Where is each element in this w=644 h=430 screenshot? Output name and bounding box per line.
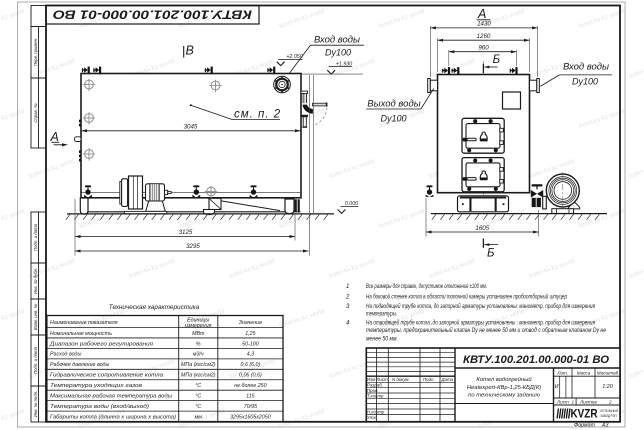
svg-text:Инв. № дубл.: Инв. № дубл. bbox=[33, 268, 38, 294]
svg-text:Dy100: Dy100 bbox=[572, 77, 598, 87]
svg-text:м3/ч: м3/ч bbox=[193, 352, 204, 358]
svg-text:Б: Б bbox=[487, 248, 495, 260]
svg-text:А3: А3 bbox=[601, 423, 609, 429]
svg-text:Лист: Лист bbox=[556, 399, 569, 404]
svg-text:3125: 3125 bbox=[179, 229, 193, 236]
svg-text:КВТУ.100.201.00.000-01 ВО: КВТУ.100.201.00.000-01 ВО bbox=[52, 7, 252, 21]
svg-text:3295х1605х2050: 3295х1605х2050 bbox=[230, 414, 271, 420]
svg-text:не более 250: не более 250 bbox=[234, 383, 266, 389]
svg-text:°С: °С bbox=[195, 404, 201, 410]
svg-text:Температура уходящих газов: Температура уходящих газов bbox=[50, 383, 142, 389]
svg-text:На подводящей трубе котла, до: На подводящей трубе котла, до запорной а… bbox=[366, 303, 596, 310]
svg-text:Dy100: Dy100 bbox=[380, 114, 406, 124]
svg-text:измерения: измерения bbox=[185, 323, 212, 329]
svg-text:Рабочее давление воды: Рабочее давление воды bbox=[50, 362, 109, 368]
svg-text:Температура воды (вход/выход): Температура воды (вход/выход) bbox=[50, 404, 149, 410]
svg-text:И: И bbox=[555, 384, 559, 390]
svg-text:Утв: Утв bbox=[367, 415, 376, 420]
svg-text:Изм Лист: Изм Лист bbox=[367, 377, 388, 382]
svg-text:1: 1 bbox=[572, 399, 575, 404]
svg-text:Наименование показателя: Наименование показателя bbox=[50, 320, 118, 326]
svg-text:Номинальная мощность: Номинальная мощность bbox=[50, 331, 112, 337]
svg-text:70/95: 70/95 bbox=[244, 404, 257, 410]
svg-text:2: 2 bbox=[608, 399, 612, 404]
svg-text:Техническая характеристика: Техническая характеристика bbox=[109, 304, 200, 311]
svg-text:960: 960 bbox=[478, 45, 489, 52]
svg-text:3045: 3045 bbox=[184, 123, 198, 130]
svg-text:°С: °С bbox=[195, 394, 201, 400]
svg-text:температуры.: температуры. bbox=[366, 312, 397, 318]
svg-text:N докум.: N докум. bbox=[392, 377, 410, 382]
svg-text:Листов: Листов bbox=[579, 399, 597, 404]
svg-text:Пров.: Пров. bbox=[367, 388, 379, 393]
svg-text:МПа (кгс/см2): МПа (кгс/см2) bbox=[181, 373, 216, 379]
svg-text:Вход воды: Вход воды bbox=[314, 35, 360, 46]
svg-text:1: 1 bbox=[346, 284, 349, 290]
svg-text:Формат: Формат bbox=[574, 423, 596, 429]
svg-text:Н.контр: Н.контр bbox=[367, 409, 385, 414]
svg-text:Инв. № подл.: Инв. № подл. bbox=[33, 391, 38, 418]
svg-text:KVZR: KVZR bbox=[571, 409, 599, 421]
svg-text:Heatexpert-КВр-1,25-КБД(К): Heatexpert-КВр-1,25-КБД(К) bbox=[467, 385, 541, 391]
svg-text:Значение: Значение bbox=[239, 320, 262, 326]
svg-text:1,25: 1,25 bbox=[245, 331, 255, 337]
svg-text:0,6 (6,0): 0,6 (6,0) bbox=[241, 362, 261, 368]
svg-text:КОТЕЛЬНЫЙ: КОТЕЛЬНЫЙ bbox=[601, 409, 619, 413]
svg-text:мм: мм bbox=[195, 414, 203, 420]
svg-text:°С: °С bbox=[195, 383, 201, 389]
svg-text:Справ. №: Справ. № bbox=[33, 103, 38, 123]
svg-text:см. п. 2: см. п. 2 bbox=[234, 109, 281, 121]
svg-text:Максимальная рабочая температу: Максимальная рабочая температура воды bbox=[50, 394, 172, 400]
svg-text:Расход воды: Расход воды bbox=[50, 352, 81, 358]
svg-text:Масса: Масса bbox=[577, 371, 591, 376]
svg-text:3295: 3295 bbox=[186, 243, 200, 250]
svg-text:%: % bbox=[196, 341, 201, 347]
svg-text:Все размеры для справок, допус: Все размеры для справок, допустимое откл… bbox=[366, 284, 487, 290]
svg-text:ЗАВОД РЭП: ЗАВОД РЭП bbox=[601, 414, 617, 418]
svg-text:1:20: 1:20 bbox=[602, 384, 613, 390]
svg-text:А: А bbox=[477, 7, 486, 21]
svg-text:МВт: МВт bbox=[192, 331, 205, 337]
svg-text:115: 115 bbox=[246, 394, 254, 400]
svg-text:1605: 1605 bbox=[475, 225, 489, 232]
svg-text:Т.контр: Т.контр bbox=[367, 393, 384, 398]
svg-text:4,3: 4,3 bbox=[247, 352, 254, 358]
svg-text:На отводящей трубе котла ,до з: На отводящей трубе котла ,до запорной ар… bbox=[366, 320, 596, 327]
svg-text:Гидравлическое сопротивление к: Гидравлическое сопротивление котла bbox=[50, 373, 163, 379]
svg-text:Лит.: Лит. bbox=[556, 371, 568, 376]
svg-text:1260: 1260 bbox=[477, 33, 491, 40]
svg-text:менее 50 мм.: менее 50 мм. bbox=[366, 336, 398, 342]
svg-text:Подп. и дата: Подп. и дата bbox=[33, 223, 38, 251]
svg-text:Выход воды: Выход воды bbox=[367, 99, 420, 110]
svg-text:Дата: Дата bbox=[441, 377, 454, 382]
svg-text:Вход воды: Вход воды bbox=[563, 62, 609, 73]
svg-text:Dy100: Dy100 bbox=[325, 48, 351, 58]
svg-text:Разраб.: Разраб. bbox=[367, 383, 383, 388]
svg-text:МПа (кгс/см2): МПа (кгс/см2) bbox=[181, 362, 216, 368]
svg-text:В: В bbox=[186, 44, 194, 58]
svg-text:по техническому заданию: по техническому заданию bbox=[468, 393, 540, 399]
svg-text:Подп.: Подп. bbox=[423, 377, 435, 382]
svg-text:Взам. инв. №: Взам. инв. № bbox=[33, 303, 38, 330]
svg-text:1430: 1430 bbox=[477, 21, 491, 28]
svg-text:Котел водогрейный: Котел водогрейный bbox=[476, 376, 532, 383]
svg-text:На боковой стенке котла в обла: На боковой стенке котла в области топочн… bbox=[366, 294, 567, 301]
svg-text:Масштаб: Масштаб bbox=[597, 371, 619, 376]
svg-text:Перв. примен.: Перв. примен. bbox=[33, 38, 38, 67]
svg-text:2: 2 bbox=[345, 295, 350, 301]
svg-text:Б: Б bbox=[493, 54, 501, 66]
svg-text:Габариты котла (длинна х ширин: Габариты котла (длинна х ширина х высота… bbox=[50, 414, 176, 420]
svg-text:Подп. и дата: Подп. и дата bbox=[33, 346, 38, 374]
svg-text:КВТУ.100.201.00.000-01 ВО: КВТУ.100.201.00.000-01 ВО bbox=[463, 354, 610, 366]
svg-text:0,06 (0,6): 0,06 (0,6) bbox=[239, 373, 262, 379]
svg-text:50-100: 50-100 bbox=[242, 341, 259, 347]
svg-text:температуры, предохранительный: температуры, предохранительный клапан Dy… bbox=[366, 327, 607, 334]
svg-text:Диапазон рабочего регулировани: Диапазон рабочего регулирования bbox=[49, 341, 153, 347]
